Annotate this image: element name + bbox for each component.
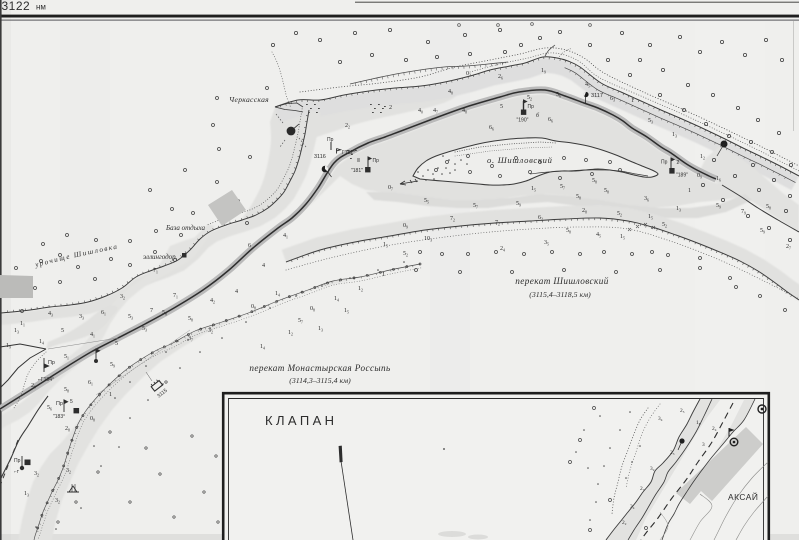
- svg-text:1: 1: [382, 272, 385, 278]
- svg-text:(3115,4–3118,5 км): (3115,4–3118,5 км): [529, 290, 591, 299]
- svg-text:1: 1: [688, 188, 691, 194]
- svg-text:Пр: Пр: [48, 360, 55, 366]
- svg-text:5: 5: [61, 328, 64, 334]
- svg-text:⌐Г: ⌐Г: [14, 469, 20, 474]
- svg-text:База отдыха: База отдыха: [165, 224, 205, 232]
- svg-text:-3122: -3122: [0, 0, 30, 13]
- svg-text:2: 2: [677, 160, 680, 166]
- svg-text:⌐Г184°: ⌐Г184°: [38, 377, 54, 383]
- svg-text:2: 2: [389, 105, 392, 111]
- svg-text:3116: 3116: [314, 154, 326, 160]
- svg-text:нм: нм: [36, 3, 46, 12]
- svg-text:6: 6: [248, 243, 251, 249]
- svg-text:Пр: Пр: [528, 104, 535, 110]
- svg-text:Пр: Пр: [661, 160, 668, 166]
- svg-text:КЛАПАН: КЛАПАН: [265, 413, 337, 428]
- svg-text:"190": "190": [517, 118, 529, 124]
- svg-text:"189": "189": [676, 173, 688, 179]
- svg-text:АКСАЙ: АКСАЙ: [728, 491, 758, 502]
- svg-text:"183°: "183°: [53, 414, 65, 420]
- svg-text:Пр: Пр: [373, 158, 380, 164]
- svg-text:5: 5: [70, 399, 73, 405]
- svg-text:Пр: Пр: [14, 458, 21, 464]
- svg-text:5: 5: [115, 341, 118, 347]
- svg-text:перекат Шишловский: перекат Шишловский: [515, 276, 608, 286]
- svg-text:перекат Монастырская Россыпь: перекат Монастырская Россыпь: [249, 363, 390, 373]
- svg-text:Пр: Пр: [327, 137, 334, 143]
- svg-text:о. Шишловский: о. Шишловский: [487, 155, 553, 165]
- svg-text:Г182°: Г182°: [342, 150, 355, 156]
- svg-text:3117: 3117: [591, 93, 603, 99]
- svg-text:4: 4: [262, 263, 265, 269]
- svg-text:Пр: Пр: [56, 401, 63, 407]
- svg-text:1: 1: [109, 392, 112, 398]
- svg-text:7: 7: [150, 308, 153, 314]
- svg-text:эллингодор.: эллингодор.: [143, 253, 178, 261]
- svg-text:"181": "181": [351, 168, 363, 174]
- svg-text:1: 1: [631, 98, 634, 104]
- svg-text:3: 3: [702, 442, 705, 448]
- svg-text:(3114,3–3115,4 км): (3114,3–3115,4 км): [289, 376, 351, 385]
- svg-text:Черкасская: Черкасская: [229, 95, 269, 104]
- svg-text:5: 5: [500, 104, 503, 110]
- svg-text:4: 4: [235, 289, 238, 295]
